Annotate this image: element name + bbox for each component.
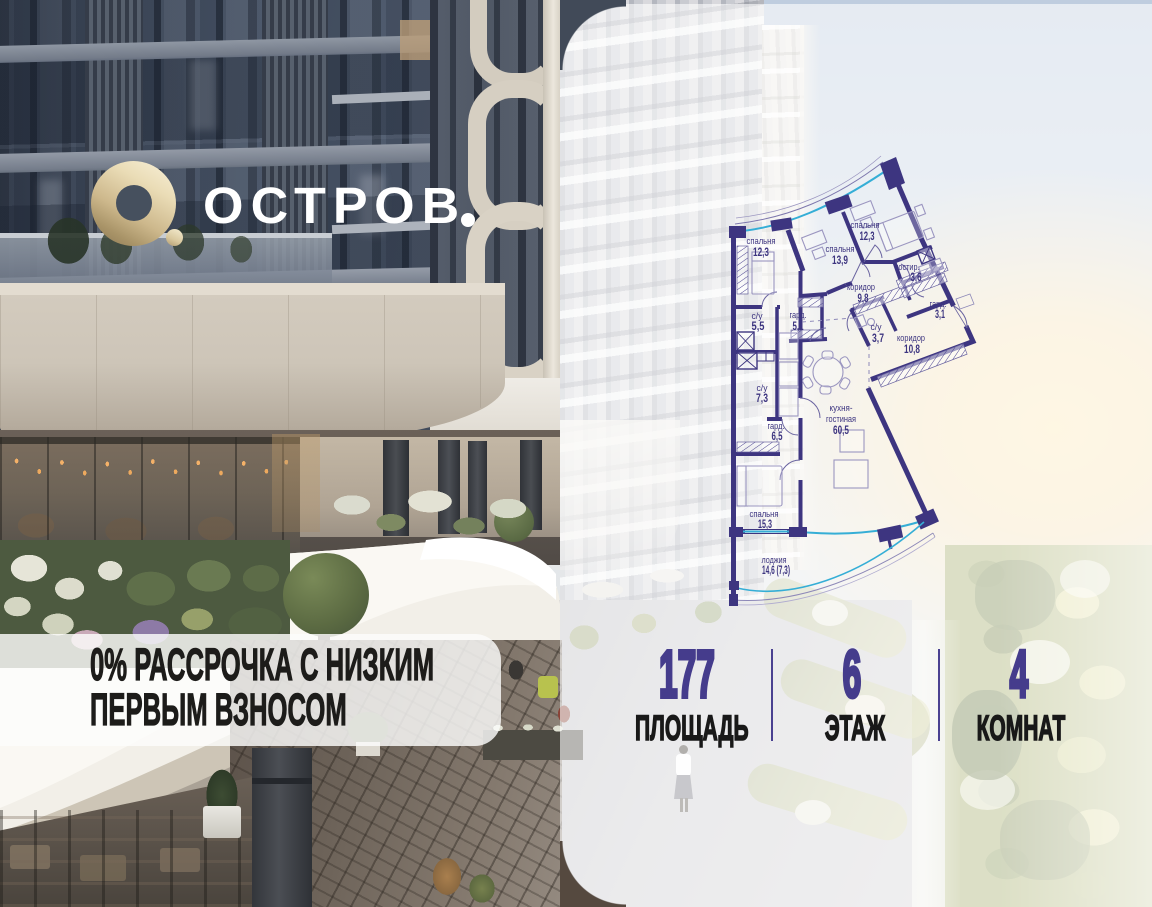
svg-text:7,3: 7,3 (756, 392, 768, 405)
svg-text:14,6 (7,3): 14,6 (7,3) (762, 564, 790, 577)
svg-text:10,8: 10,8 (904, 343, 920, 356)
svg-text:5,1: 5,1 (793, 320, 804, 333)
svg-text:3,7: 3,7 (872, 332, 884, 345)
svg-text:кухня-: кухня- (830, 403, 853, 414)
svg-text:12,3: 12,3 (753, 246, 769, 259)
svg-text:15,3: 15,3 (758, 518, 772, 531)
svg-text:6,5: 6,5 (772, 430, 783, 443)
svg-text:60,5: 60,5 (833, 424, 849, 437)
svg-text:5,5: 5,5 (752, 320, 765, 333)
svg-text:3,1: 3,1 (935, 308, 945, 321)
svg-text:13,9: 13,9 (832, 254, 848, 267)
svg-text:9,8: 9,8 (858, 292, 869, 305)
svg-text:3,6: 3,6 (911, 271, 922, 284)
svg-text:12,3: 12,3 (860, 230, 875, 243)
